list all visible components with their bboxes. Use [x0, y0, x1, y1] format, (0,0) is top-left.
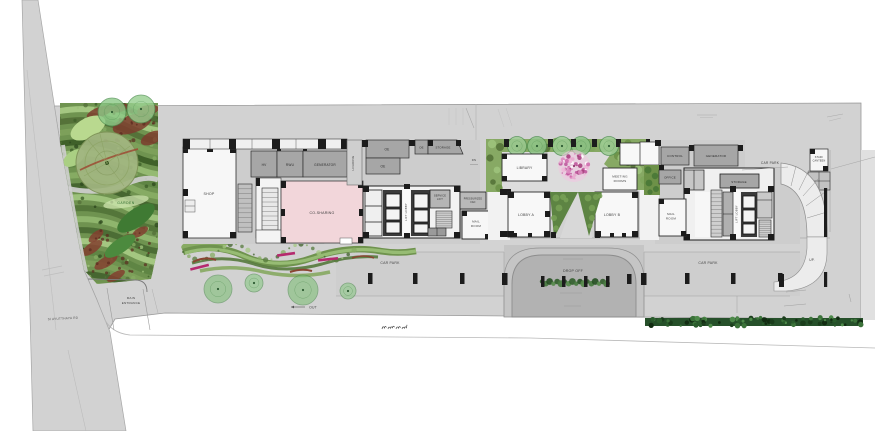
svg-text:RWU: RWU: [286, 163, 295, 167]
svg-text:GENERATOR: GENERATOR: [706, 154, 727, 158]
svg-text:SHOP: SHOP: [204, 192, 215, 196]
svg-text:OE: OE: [419, 146, 423, 150]
svg-text:CAR PARK: CAR PARK: [698, 261, 718, 265]
svg-text:LIFT LOBBY: LIFT LOBBY: [404, 203, 408, 221]
svg-text:STORAGE: STORAGE: [435, 146, 450, 150]
svg-text:LOBBY A: LOBBY A: [518, 213, 535, 217]
svg-text:DN: DN: [472, 158, 476, 162]
svg-text:ROOM: ROOM: [666, 217, 676, 221]
svg-text:OUT: OUT: [309, 306, 317, 310]
svg-text:OE: OE: [380, 165, 385, 169]
svg-text:LIFT LOBBY: LIFT LOBBY: [735, 205, 739, 223]
svg-text:CONTROL: CONTROL: [667, 154, 683, 158]
svg-text:MAIL: MAIL: [667, 212, 675, 216]
svg-text:CAR PARK: CAR PARK: [380, 261, 400, 265]
svg-text:GARDEN: GARDEN: [117, 201, 135, 205]
svg-text:MAIL: MAIL: [472, 220, 480, 224]
svg-text:LIFT: LIFT: [437, 198, 443, 201]
svg-text:LOADING: LOADING: [351, 155, 355, 170]
svg-text:STORAGE: STORAGE: [731, 180, 746, 184]
svg-text:UP.: UP.: [809, 258, 815, 262]
svg-text:CO-SHARING: CO-SHARING: [310, 211, 335, 215]
svg-text:CAR PARK: CAR PARK: [761, 161, 780, 165]
svg-text:CANTEEN: CANTEEN: [813, 160, 826, 163]
svg-text:MEETING: MEETING: [612, 175, 628, 179]
svg-text:PRESSURIZED: PRESSURIZED: [464, 199, 483, 201]
svg-text:HV: HV: [262, 163, 268, 167]
svg-text:ENTRANCE: ENTRANCE: [122, 301, 141, 305]
svg-text:OE: OE: [384, 148, 389, 152]
svg-text:DROP OFF: DROP OFF: [563, 269, 584, 273]
svg-text:MAIN: MAIN: [127, 296, 136, 300]
svg-text:LIBRARY: LIBRARY: [517, 166, 533, 170]
svg-text:ROOMS: ROOMS: [614, 179, 627, 183]
svg-text:OFFICE: OFFICE: [664, 176, 676, 180]
svg-text:ROOM: ROOM: [471, 224, 481, 228]
svg-text:LOBBY B: LOBBY B: [604, 213, 621, 217]
svg-text:GENERATOR: GENERATOR: [314, 163, 336, 167]
svg-text:FAN: FAN: [470, 201, 475, 204]
